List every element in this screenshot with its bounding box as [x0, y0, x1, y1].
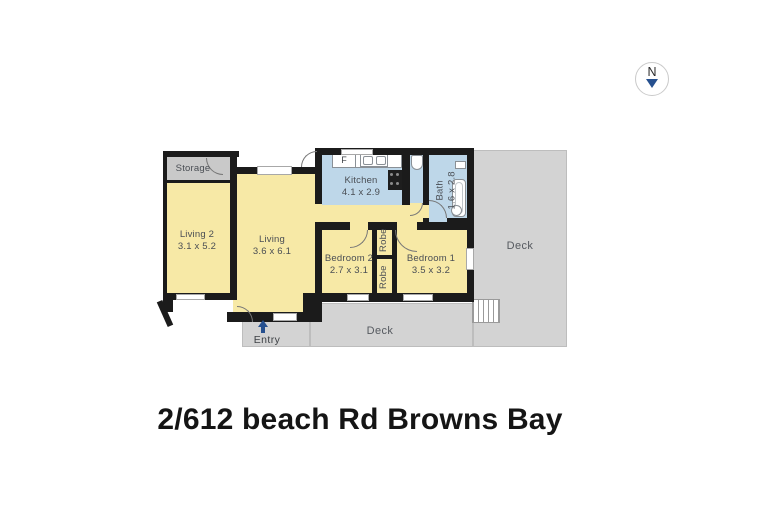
- deck-side-label: Deck: [493, 240, 547, 252]
- wall-kitchen-wc: [402, 148, 410, 205]
- room-label-robe-lower: Robe: [378, 259, 390, 295]
- window-living2-bottom: [176, 294, 205, 300]
- room-label-bedroom2: Bedroom 2 2.7 x 3.1: [315, 253, 383, 278]
- room-label-bedroom1: Bedroom 1 3.5 x 3.2: [397, 253, 465, 278]
- room-label-bath: Bath 1.6 x 2.8: [435, 162, 460, 218]
- deck-stairs: [472, 299, 500, 323]
- room-label-storage: Storage: [163, 163, 223, 175]
- toilet: [411, 155, 423, 170]
- entry-arrow-stem: [261, 327, 265, 333]
- door-arc-kitchen-nook: [301, 151, 317, 167]
- room-label-living2: Living 2 3.1 x 5.2: [162, 229, 232, 254]
- sink-bowl: [363, 156, 373, 165]
- sink-bowl: [376, 156, 386, 165]
- deck-front-label: Deck: [353, 325, 407, 337]
- fridge-label: F: [341, 155, 347, 165]
- wall-bedroom-top-1: [315, 222, 350, 230]
- wall-storage-top: [163, 151, 239, 157]
- floorplan-page: N F: [0, 0, 768, 512]
- window-bedroom1-right: [466, 248, 474, 270]
- wall-wc-bath: [423, 148, 429, 205]
- room-label-kitchen: Kitchen 4.1 x 2.9: [326, 175, 396, 200]
- room-label-robe-upper: Robe: [378, 222, 390, 258]
- entry-arrow-icon: [258, 320, 268, 327]
- kitchen-sink: [360, 153, 388, 167]
- window-living-bottom: [273, 313, 297, 321]
- address-title: 2/612 beach Rd Browns Bay: [0, 403, 720, 437]
- wall-storage-bottom: [167, 180, 230, 183]
- entry-label: Entry: [243, 334, 291, 346]
- wall-bedroom-top-3: [417, 222, 474, 230]
- window-kitchen-top: [341, 149, 373, 155]
- window-bedroom2-bottom: [347, 294, 369, 301]
- room-label-living: Living 3.6 x 6.1: [237, 234, 307, 259]
- window-bedroom1-bottom: [403, 294, 433, 301]
- window-living-top: [257, 166, 292, 175]
- wall-kitchen-top: [315, 148, 474, 155]
